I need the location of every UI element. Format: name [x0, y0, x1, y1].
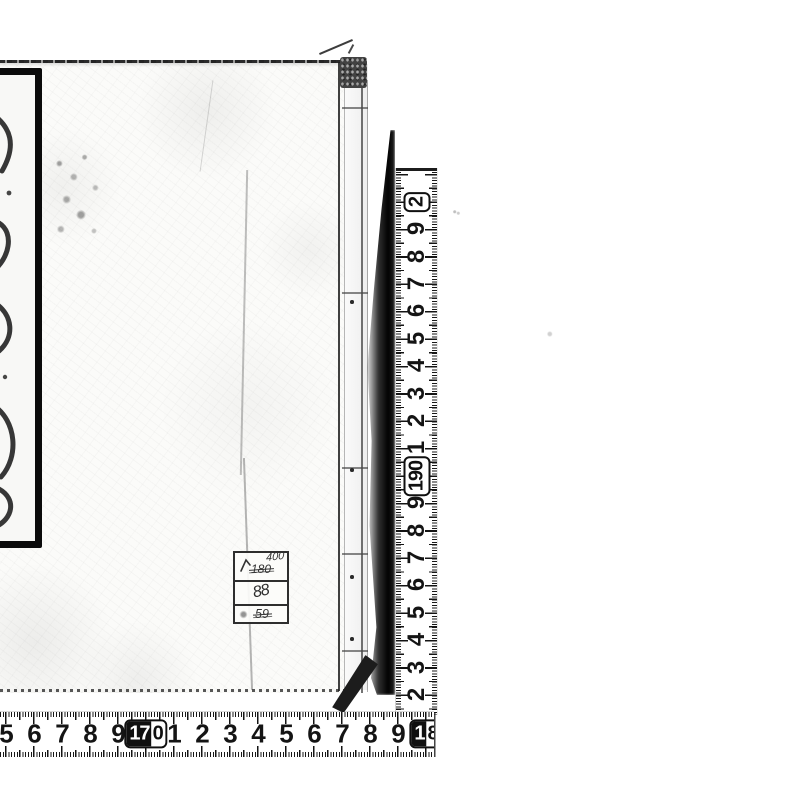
v-ruler-number-3: 3 [405, 661, 429, 673]
book-cover [0, 60, 368, 693]
price-label-row: 59 [235, 604, 287, 624]
h-ruler-number-170: 170 [124, 719, 167, 748]
scribble-mark [239, 610, 248, 619]
v-ruler-number-5: 5 [405, 333, 429, 345]
v-ruler-number-8: 8 [405, 250, 429, 262]
price-label-row: 400 180 [235, 553, 287, 578]
h-ruler-number-4: 4 [251, 720, 264, 747]
handwritten-price-middle: 88 [252, 583, 271, 602]
h-ruler-number-3: 3 [223, 720, 236, 747]
h-ruler-number-8: 8 [83, 720, 96, 747]
cover-edge-line [344, 64, 345, 690]
scan-background: 400 180 88 59 234567891901234567892 5678… [0, 0, 800, 800]
h-ruler-number-2: 2 [195, 720, 208, 747]
h-ruler-number-8: 8 [363, 720, 376, 747]
book-top-edge-shading [0, 63, 347, 67]
vertical-ruler: 234567891901234567892 [396, 168, 437, 715]
price-label-row: 88 [235, 580, 287, 604]
v-ruler-number-190: 190 [404, 456, 431, 496]
spine-section-line [342, 650, 368, 652]
stain-smudge [45, 150, 117, 240]
v-ruler-number-7: 7 [405, 552, 429, 564]
v-ruler-number-5: 5 [405, 607, 429, 619]
v-ruler-number-2: 2 [405, 415, 429, 427]
h-ruler-number-7: 7 [55, 720, 68, 747]
v-ruler-number-2: 2 [405, 689, 429, 701]
h-ruler-number-18: 18 [409, 719, 434, 748]
v-ruler-number-3: 3 [405, 387, 429, 399]
v-ruler-number-6: 6 [405, 579, 429, 591]
v-ruler-number-1: 1 [405, 442, 429, 454]
handwritten-price-crossed: 180 [251, 563, 271, 575]
spine-section-line [342, 107, 368, 109]
stitch-hole [350, 300, 354, 304]
corner-protector [340, 57, 367, 88]
stitch-hole [350, 637, 354, 641]
book-edge-shadow [365, 130, 395, 695]
v-ruler-number-4: 4 [405, 634, 429, 646]
spine-edge-line [367, 80, 368, 692]
book-bottom-edge [0, 689, 345, 692]
v-ruler-number-8: 8 [405, 524, 429, 536]
h-ruler-number-9: 9 [111, 720, 124, 747]
spine-edge-line [361, 65, 363, 693]
dust-speck [545, 331, 557, 337]
h-ruler-number-7: 7 [335, 720, 348, 747]
v-ruler-number-9: 9 [405, 223, 429, 235]
v-ruler-number-9: 9 [405, 497, 429, 509]
v-ruler-number-7: 7 [405, 278, 429, 290]
calligraphy-strokes-icon [0, 75, 35, 541]
h-ruler-number-6: 6 [307, 720, 320, 747]
spine-section-line [342, 553, 368, 555]
book-spine-fore-edge [345, 64, 368, 690]
price-label: 400 180 88 59 [233, 551, 289, 624]
stitch-hole [350, 468, 354, 472]
title-slip [0, 68, 42, 548]
spine-section-line [342, 467, 368, 469]
horizontal-ruler: 5678917012345678918 [0, 712, 434, 757]
bent-corner-mark [348, 44, 354, 54]
h-ruler-number-5: 5 [279, 720, 292, 747]
h-ruler-number-1: 1 [167, 720, 180, 747]
v-ruler-number-4: 4 [405, 360, 429, 372]
handwritten-price-crossed: 59 [255, 608, 269, 621]
dust-speck [452, 209, 461, 216]
v-ruler-number-6: 6 [405, 305, 429, 317]
v-ruler-number-2: 2 [404, 192, 431, 212]
cover-edge-line [338, 62, 340, 691]
h-ruler-number-5: 5 [0, 720, 13, 747]
h-ruler-number-9: 9 [391, 720, 404, 747]
h-ruler-number-6: 6 [27, 720, 40, 747]
spine-section-line [342, 292, 368, 294]
stitch-hole [350, 575, 354, 579]
